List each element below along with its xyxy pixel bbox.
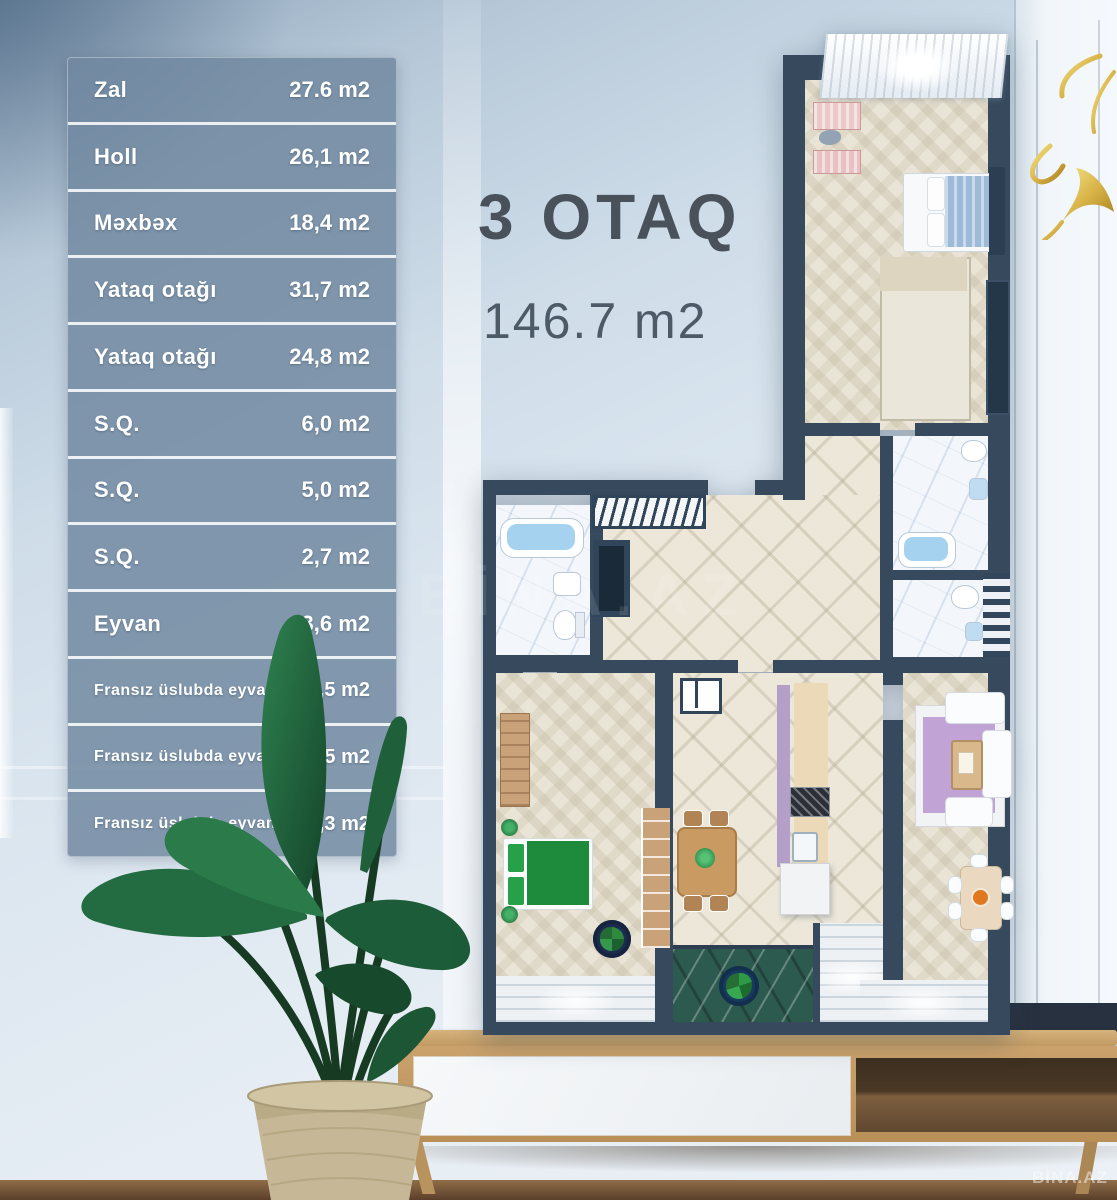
- bed1-pillow-2: [927, 213, 945, 247]
- wall-rooms-top-b: [557, 660, 738, 673]
- room-label: S.Q.: [94, 411, 140, 437]
- bedroom2-plant-2: [501, 906, 518, 923]
- wall-bathroom2-left: [880, 436, 893, 672]
- room-area: 2,7 m2: [302, 544, 371, 570]
- wall-bathroom2-3: [893, 570, 988, 580]
- wall-living-left-a: [883, 660, 903, 685]
- area-row: Məxbəx18,4 m2: [68, 189, 396, 256]
- room-area: 18,4 m2: [289, 210, 370, 236]
- toilet-2: [961, 440, 987, 462]
- wall-left-light-strip: [0, 408, 13, 838]
- room-area: 24,8 m2: [289, 344, 370, 370]
- leaf-right: [325, 900, 470, 970]
- wall-top-left: [783, 55, 805, 500]
- room-label: Zal: [94, 77, 127, 103]
- balcony-bedroom2: [496, 976, 655, 1022]
- kitchen-cabinet-purple: [777, 685, 790, 867]
- watermark-corner: BİNA.AZ: [1032, 1168, 1108, 1188]
- potted-plant: [55, 575, 485, 1200]
- gold-logo: [1016, 50, 1117, 240]
- floor-plan: [483, 40, 1010, 1035]
- bench-pink-2: [813, 150, 861, 174]
- room-label: Holl: [94, 144, 138, 170]
- kitchen-cabinet-white: [780, 863, 830, 915]
- bathroom3-shelf: [983, 573, 1010, 657]
- sofa-top: [945, 692, 1005, 724]
- toilet-3: [951, 585, 979, 609]
- kitchen-chair-4: [709, 895, 729, 912]
- armchair-bottom: [945, 797, 993, 827]
- living-dining-dish: [973, 890, 988, 905]
- room-label: Yataq otağı: [94, 277, 217, 303]
- wall-leftwing-top-b: [755, 480, 805, 495]
- area-row: S.Q.6,0 m2: [68, 389, 396, 456]
- coat-rack-hatch: [592, 495, 706, 529]
- area-row: Yataq otağı31,7 m2: [68, 255, 396, 322]
- bed1-headboard: [989, 167, 1005, 255]
- living-chair-4: [948, 902, 962, 920]
- bed1-blanket: [945, 176, 991, 247]
- kitchen-chair-2: [709, 810, 729, 827]
- kitchen-pass-window-bar: [695, 678, 698, 708]
- bench-pink-1: [813, 102, 861, 130]
- bed2-mattress-green: [527, 841, 589, 905]
- dining-table-plant: [695, 848, 715, 868]
- wall-bedroom1-partition-a: [805, 423, 880, 436]
- room-area: 27.6 m2: [289, 77, 370, 103]
- window-glow: [875, 40, 959, 92]
- console-shelf-opening: [856, 1058, 1117, 1132]
- bed1-pillow-1: [927, 177, 945, 211]
- kitchen-pass-window: [680, 678, 722, 714]
- room-area: 5,0 m2: [302, 477, 371, 503]
- mat-gray: [819, 130, 841, 145]
- sink-2: [969, 478, 988, 500]
- room-label: Yataq otağı: [94, 344, 217, 370]
- kitchen-sink: [792, 832, 818, 862]
- wall-rooms-top-a: [483, 660, 523, 673]
- bedroom2-plant-1: [501, 819, 518, 836]
- room-label: S.Q.: [94, 544, 140, 570]
- living-chair-3: [1000, 876, 1014, 894]
- living-chair-2: [948, 876, 962, 894]
- bedroom2-wardrobe: [500, 713, 530, 807]
- room-label: Məxbəx: [94, 210, 178, 236]
- room-area: 26,1 m2: [289, 144, 370, 170]
- leaf-tall: [261, 615, 326, 890]
- bed2-pillow-2: [507, 876, 525, 906]
- wall-balcony-divider: [813, 923, 820, 1022]
- listing-poster: Zal27.6 m2 Holl26,1 m2 Məxbəx18,4 m2 Yat…: [0, 0, 1117, 1200]
- living-chair-6: [970, 928, 988, 942]
- wall-rooms-top-c: [773, 660, 883, 673]
- leaf-upright: [360, 716, 407, 873]
- wall-bottom: [483, 1022, 1010, 1035]
- sofa-right: [982, 730, 1012, 798]
- bathtub-2-water: [904, 537, 948, 561]
- coffee-table-paper: [958, 752, 974, 774]
- bedroom1-closet: [986, 280, 1010, 415]
- wall-living-left-b: [883, 720, 903, 980]
- kitchen-chair-1: [683, 810, 703, 827]
- balcony-living: [860, 980, 988, 1022]
- bedroom1-dresser-top: [880, 257, 967, 291]
- wall-bedroom1-partition-b: [915, 423, 988, 436]
- kitchen-chair-3: [683, 895, 703, 912]
- area-row: Zal27.6 m2: [68, 58, 396, 122]
- living-chair-1: [970, 854, 988, 868]
- bathtub-1-water: [507, 524, 575, 550]
- area-row: Holl26,1 m2: [68, 122, 396, 189]
- bedroom2-potted-plant-leaves: [600, 927, 624, 951]
- room-label: S.Q.: [94, 477, 140, 503]
- sink-3: [965, 622, 983, 641]
- area-row: Yataq otağı24,8 m2: [68, 322, 396, 389]
- bedroom2-shelf: [641, 808, 670, 948]
- room-area: 6,0 m2: [302, 411, 371, 437]
- watermark-center: BİNA.AZ: [418, 562, 751, 629]
- room-area: 31,7 m2: [289, 277, 370, 303]
- area-row: S.Q.5,0 m2: [68, 456, 396, 523]
- bed2-pillow-1: [507, 843, 525, 873]
- kitchen-stove: [790, 787, 830, 817]
- console-shadow: [400, 1146, 1117, 1176]
- living-chair-5: [1000, 902, 1014, 920]
